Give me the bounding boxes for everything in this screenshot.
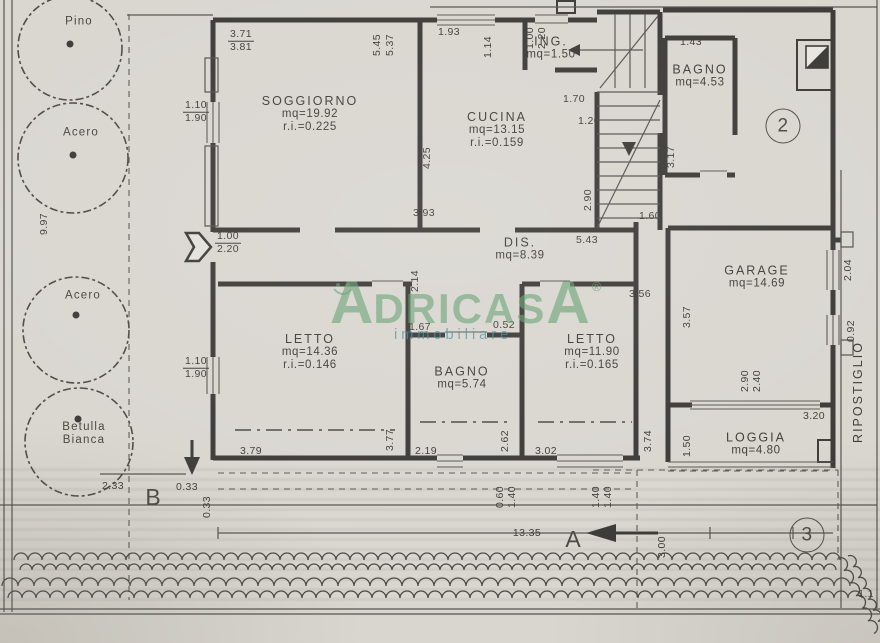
dimension-label: 2.90 [583, 189, 595, 211]
room-label: CUCINAmq=13.15r.i.=0.159 [467, 110, 527, 150]
dimension-fraction-label: 1.101.90 [183, 100, 209, 125]
dimension-label: 3.93 [413, 208, 435, 220]
dimension-fraction-label: 3.713.81 [228, 29, 254, 54]
dimension-label: 1.40 [591, 486, 603, 508]
room-label: BAGNOmq=4.53 [672, 63, 727, 90]
dimension-label: 4.25 [422, 147, 434, 169]
dimension-label: 2.04 [843, 259, 855, 281]
dimension-label: 9.97 [39, 213, 51, 235]
dimension-label: 2.40 [752, 370, 764, 392]
room-label: LETTOmq=14.36r.i.=0.146 [282, 332, 338, 372]
dimension-label: 0.33 [176, 482, 198, 494]
room-label: LETTOmq=11.90r.i.=0.165 [564, 332, 619, 372]
dimension-label: 3.56 [629, 289, 651, 301]
dimension-label: 0.52 [493, 320, 515, 332]
dimension-label: 3.79 [240, 446, 262, 458]
dimension-label: 2.90 [740, 370, 752, 392]
dimension-label: 1.70 [563, 94, 585, 106]
dimension-label: 3.17 [666, 146, 678, 168]
dimension-label: 3.77 [385, 429, 397, 451]
tree-label: Acero [63, 127, 99, 140]
dimension-label: 0.33 [202, 496, 214, 518]
plan-marker: 2 [766, 109, 801, 144]
dimension-label: 5.45 [372, 34, 384, 56]
floor-plan: 1.935.455.371.141.002.201.431.701.203.17… [0, 0, 880, 643]
room-label: SOGGIORNOmq=19.92r.i.=0.225 [262, 94, 358, 134]
room-label: ING.mq=1.50 [526, 35, 575, 62]
tree-label: BetullaBianca [62, 421, 106, 447]
dimension-label: 3.20 [803, 411, 825, 423]
dimension-label: 1.40 [507, 486, 519, 508]
dimension-label: 3.57 [682, 306, 694, 328]
dimension-label: 1.43 [680, 37, 702, 49]
dimension-label: 1.50 [682, 435, 694, 457]
dimension-label: 1.1 [858, 589, 874, 601]
dimension-label: 13.35 [513, 528, 541, 540]
room-label: BAGNOmq=5.74 [434, 365, 489, 392]
dimension-label: 1.60 [639, 211, 661, 223]
dimension-label: 1.14 [483, 36, 495, 58]
dimension-label: 1.20 [578, 116, 600, 128]
dimension-label: 5.37 [385, 34, 397, 56]
room-label: DIS.mq=8.39 [495, 236, 544, 263]
plan-marker: B [145, 485, 160, 511]
room-label: LOGGIAmq=4.80 [726, 431, 786, 458]
dimension-label: 1.40 [603, 486, 615, 508]
plan-marker: 3 [790, 518, 825, 553]
tree-label: Pino [65, 16, 93, 29]
dimension-label: 2.62 [500, 430, 512, 452]
dimension-label: 5.43 [576, 235, 598, 247]
dimension-label: 2.19 [415, 446, 437, 458]
dimension-label: 2.14 [410, 270, 422, 292]
dimension-label: 0.60 [495, 486, 507, 508]
label-layer: 1.935.455.371.141.002.201.431.701.203.17… [0, 0, 880, 643]
dimension-label: 1.93 [438, 27, 460, 39]
room-label: RIPOSTIGLIO [851, 341, 865, 443]
room-label: GARAGEmq=14.69 [724, 264, 790, 291]
dimension-fraction-label: 1.002.20 [215, 231, 241, 256]
dimension-label: 3.02 [535, 446, 557, 458]
plan-marker: A [565, 527, 580, 553]
dimension-label: 1.67 [409, 322, 431, 334]
dimension-fraction-label: 1.101.90 [183, 356, 209, 381]
dimension-label: 2.33 [102, 481, 124, 493]
dimension-label: 3.74 [643, 430, 655, 452]
dimension-label: 0.92 [846, 320, 858, 342]
tree-label: Acero [65, 290, 101, 303]
dimension-label: 3.00 [657, 536, 669, 558]
